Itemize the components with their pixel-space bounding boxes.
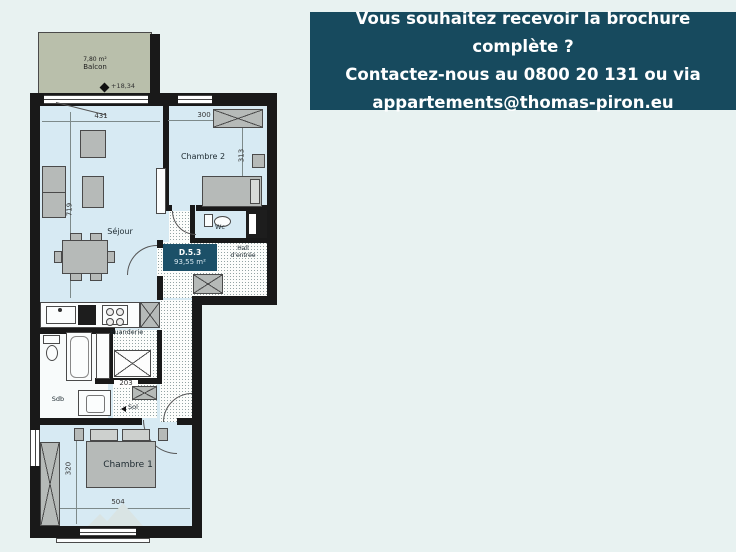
bathtub-symbol — [66, 332, 92, 381]
washing-machine-symbol — [114, 350, 151, 377]
door-leaf-symbol — [96, 333, 110, 379]
window-sill — [56, 538, 150, 543]
wall-segment — [30, 418, 142, 425]
wardrobe-symbol — [213, 109, 263, 128]
chair-symbol — [54, 251, 62, 263]
dimension-label: 504 — [100, 499, 136, 506]
chambre1-label: Chambre 1 — [94, 461, 162, 471]
chair-symbol — [70, 273, 82, 281]
page: Vous souhaitez recevoir la brochure comp… — [0, 0, 736, 552]
pillow-symbol — [90, 429, 118, 441]
pillow-symbol — [122, 429, 150, 441]
sofa-symbol — [42, 166, 66, 218]
dimension-line — [76, 438, 77, 524]
chambre2-label: Chambre 2 — [175, 153, 231, 162]
hob-symbol — [102, 305, 128, 325]
arrow-left-icon — [121, 406, 126, 412]
dimension-label: 719 — [67, 197, 74, 223]
balcony-area-label: 7,80 m² — [39, 56, 151, 63]
wc-label: Wc — [212, 224, 228, 231]
pillow-symbol — [250, 179, 260, 204]
dimension-label: 313 — [239, 143, 246, 169]
shaft-symbol — [193, 274, 223, 294]
cabinet-symbol — [132, 386, 157, 400]
banner-line-2: Contactez-nous au 0800 20 131 ou via — [310, 61, 736, 89]
wall-segment — [157, 276, 163, 300]
nightstand-symbol — [252, 154, 265, 168]
wall-segment — [157, 330, 162, 384]
sdb-label: Sdb — [45, 396, 71, 403]
contact-banner: Vous souhaitez recevoir la brochure comp… — [310, 12, 736, 110]
sofa-divider — [43, 192, 65, 193]
wc-closet-symbol — [246, 210, 267, 238]
sejour-label: Séjour — [95, 228, 145, 237]
wall-segment — [150, 34, 160, 95]
nightstand-symbol — [74, 428, 84, 441]
buanderie-label: Buanderie — [110, 329, 162, 336]
oven-symbol — [78, 305, 96, 325]
dimension-line — [42, 121, 160, 122]
washbasin-symbol — [78, 390, 111, 416]
coffee-table-symbol — [82, 176, 104, 208]
level-label: +18,34 — [111, 83, 141, 90]
window-symbol — [178, 95, 212, 104]
armchair-symbol — [80, 130, 106, 158]
hall-label: Hall d'entrée — [222, 246, 264, 259]
wall-segment — [30, 93, 40, 538]
nightstand-symbol — [158, 428, 168, 441]
window-symbol — [80, 528, 136, 536]
banner-line-1: Vous souhaitez recevoir la brochure comp… — [310, 5, 736, 61]
bathtub-inner — [70, 336, 89, 378]
unit-label-box: D.5.3 93,55 m² — [163, 244, 217, 271]
dining-table-symbol — [62, 240, 108, 274]
radiator-symbol — [156, 168, 166, 214]
dimension-line — [44, 508, 190, 509]
unit-area: 93,55 m² — [163, 258, 217, 266]
chair-symbol — [90, 273, 102, 281]
wall-segment — [192, 296, 277, 305]
wall-segment — [190, 238, 277, 243]
dimension-label: 431 — [83, 113, 119, 120]
toilet-cistern-symbol — [43, 335, 60, 344]
balcony-label: Balcon — [39, 63, 151, 71]
dimension-label: 320 — [66, 456, 73, 482]
sol-label: Sol — [128, 404, 152, 411]
hall-label-line2: d'entrée — [222, 253, 264, 260]
washbasin-inner — [86, 395, 105, 413]
wall-segment — [192, 296, 202, 538]
wardrobe-symbol — [40, 442, 60, 526]
wc-closet-door — [249, 214, 256, 234]
shaft-symbol — [140, 302, 160, 328]
unit-id: D.5.3 — [163, 248, 217, 258]
wall-segment — [267, 93, 277, 305]
toilet-bowl-symbol — [46, 345, 58, 361]
banner-line-3: appartements@thomas-piron.eu — [310, 89, 736, 117]
chair-symbol — [107, 251, 115, 263]
window-symbol — [30, 430, 40, 466]
faucet-symbol — [58, 308, 62, 312]
